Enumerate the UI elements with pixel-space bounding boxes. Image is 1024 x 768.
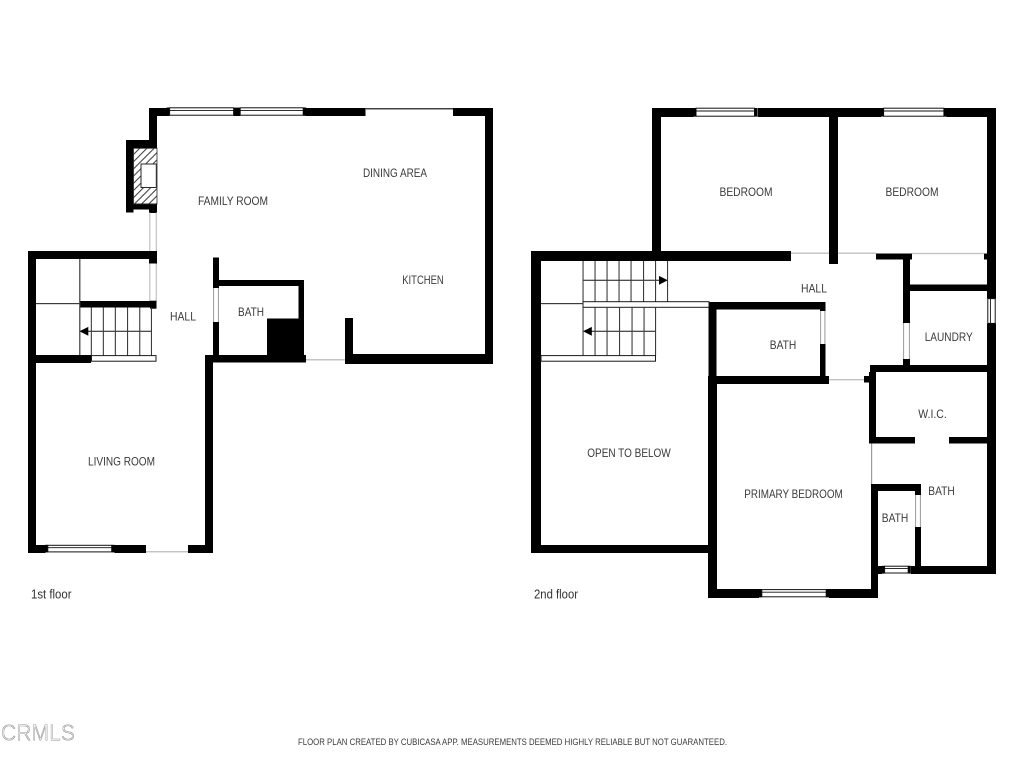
svg-text:1st floor: 1st floor	[31, 587, 72, 602]
svg-text:HALL: HALL	[170, 311, 196, 324]
svg-text:CRMLS: CRMLS	[1, 720, 75, 746]
svg-text:DINING AREA: DINING AREA	[363, 167, 427, 180]
svg-text:BEDROOM: BEDROOM	[886, 186, 939, 199]
svg-text:PRIMARY BEDROOM: PRIMARY BEDROOM	[744, 488, 843, 501]
svg-text:BATH: BATH	[882, 512, 909, 525]
svg-text:2nd floor: 2nd floor	[534, 587, 579, 602]
svg-text:BATH: BATH	[928, 485, 955, 498]
svg-text:HALL: HALL	[801, 283, 827, 296]
svg-text:FLOOR PLAN CREATED BY CUBICASA: FLOOR PLAN CREATED BY CUBICASA APP. MEAS…	[298, 737, 727, 747]
svg-text:W.I.C.: W.I.C.	[918, 408, 947, 421]
svg-text:BATH: BATH	[238, 306, 264, 319]
svg-text:LAUNDRY: LAUNDRY	[925, 331, 973, 344]
svg-text:KITCHEN: KITCHEN	[402, 274, 444, 287]
svg-text:BEDROOM: BEDROOM	[720, 186, 773, 199]
svg-text:FAMILY ROOM: FAMILY ROOM	[198, 195, 268, 208]
svg-text:BATH: BATH	[770, 339, 797, 352]
svg-text:LIVING ROOM: LIVING ROOM	[88, 456, 155, 469]
svg-text:OPEN TO BELOW: OPEN TO BELOW	[587, 447, 671, 460]
